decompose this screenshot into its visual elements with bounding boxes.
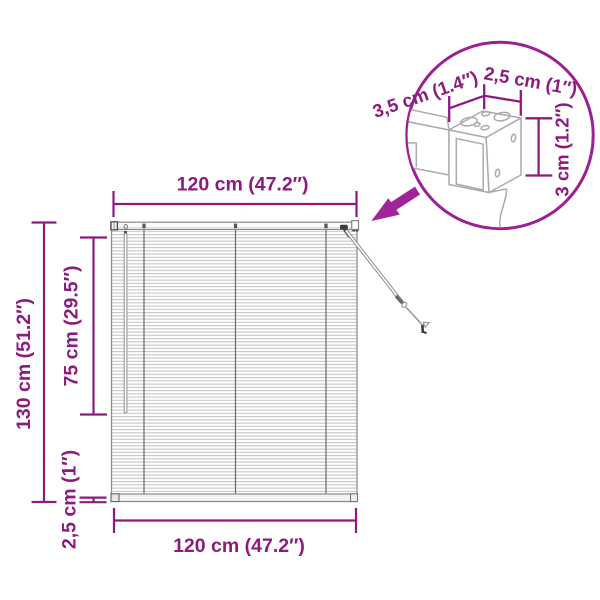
svg-text:120 cm (47.2″): 120 cm (47.2″) <box>173 535 305 557</box>
svg-text:2,5 cm (1″): 2,5 cm (1″) <box>59 450 81 549</box>
svg-text:130 cm (51.2″): 130 cm (51.2″) <box>13 298 35 430</box>
svg-text:120 cm (47.2″): 120 cm (47.2″) <box>177 174 309 196</box>
svg-text:75 cm (29.5″): 75 cm (29.5″) <box>60 266 82 387</box>
svg-text:3 cm (1.2″): 3 cm (1.2″) <box>552 102 573 196</box>
